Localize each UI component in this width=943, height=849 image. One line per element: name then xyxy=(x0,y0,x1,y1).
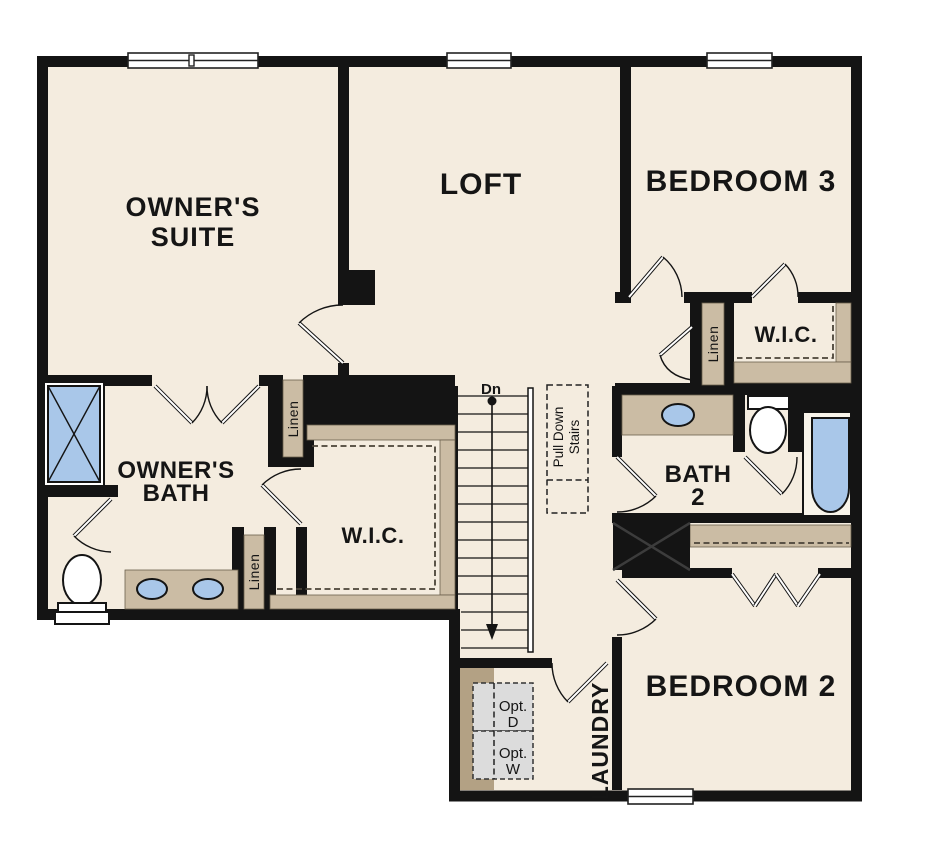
linen-hall-label: Linen xyxy=(705,326,721,363)
bedroom2-window xyxy=(628,789,693,804)
owners-wic-label: W.I.C. xyxy=(342,523,405,548)
bedroom3-wic-label: W.I.C. xyxy=(755,322,818,347)
optional-appliances: Opt. D Opt. W xyxy=(473,683,533,779)
bath2-label-line2: 2 xyxy=(691,484,705,511)
opt-dryer-label-line1: Opt. xyxy=(499,698,527,715)
opt-washer-label-line1: Opt. xyxy=(499,745,527,762)
loft-label: LOFT xyxy=(440,168,522,201)
floor-plan-page: Dn Pull Down Stairs xyxy=(0,0,943,849)
stairs-down-label: Dn xyxy=(481,381,501,398)
owners-vanity xyxy=(125,570,238,609)
bath2-toilet xyxy=(748,396,789,453)
bedroom2-label: BEDROOM 2 xyxy=(646,670,837,703)
bath2-vanity xyxy=(622,395,733,435)
linen-bath-label: Linen xyxy=(246,554,262,591)
bedroom3-label: BEDROOM 3 xyxy=(646,165,837,198)
pull-down-stairs-label-line2: Stairs xyxy=(567,419,582,454)
floor-plan-drawing: Dn Pull Down Stairs xyxy=(0,0,943,849)
bathtub xyxy=(803,412,851,516)
opt-washer-label-line2: W xyxy=(506,761,521,778)
bedroom3-window xyxy=(707,53,772,68)
laundry-label: LAUNDRY xyxy=(587,682,613,801)
owners-suite-label-line2: SUITE xyxy=(151,222,236,252)
loft-window xyxy=(447,53,511,68)
stair-railing xyxy=(528,388,533,652)
chase-box xyxy=(613,523,690,570)
owners-suite-label-line1: OWNER'S xyxy=(126,192,261,222)
owners-bath-label-line2: BATH xyxy=(143,480,210,507)
linen-top-label: Linen xyxy=(285,401,301,438)
owners-suite-window xyxy=(128,53,258,68)
shower xyxy=(44,382,104,486)
pull-down-stairs-label-line1: Pull Down xyxy=(551,407,566,468)
opt-dryer-label-line2: D xyxy=(508,714,519,731)
